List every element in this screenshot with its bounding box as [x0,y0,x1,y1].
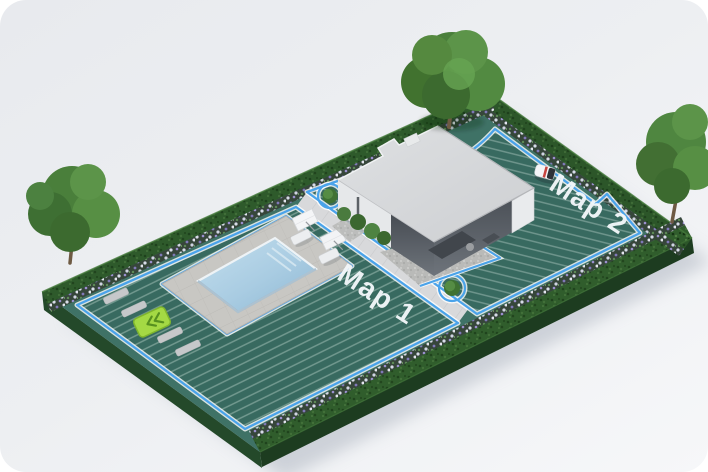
garden-3d-map: Map 1 Map 2 [0,0,708,472]
coffee-table [466,243,474,251]
right-tree [636,104,708,222]
illustration-card: Map 1 Map 2 [0,0,708,472]
left-tree [26,164,120,263]
screenshot-stage: Map 1 Map 2 [0,0,708,472]
